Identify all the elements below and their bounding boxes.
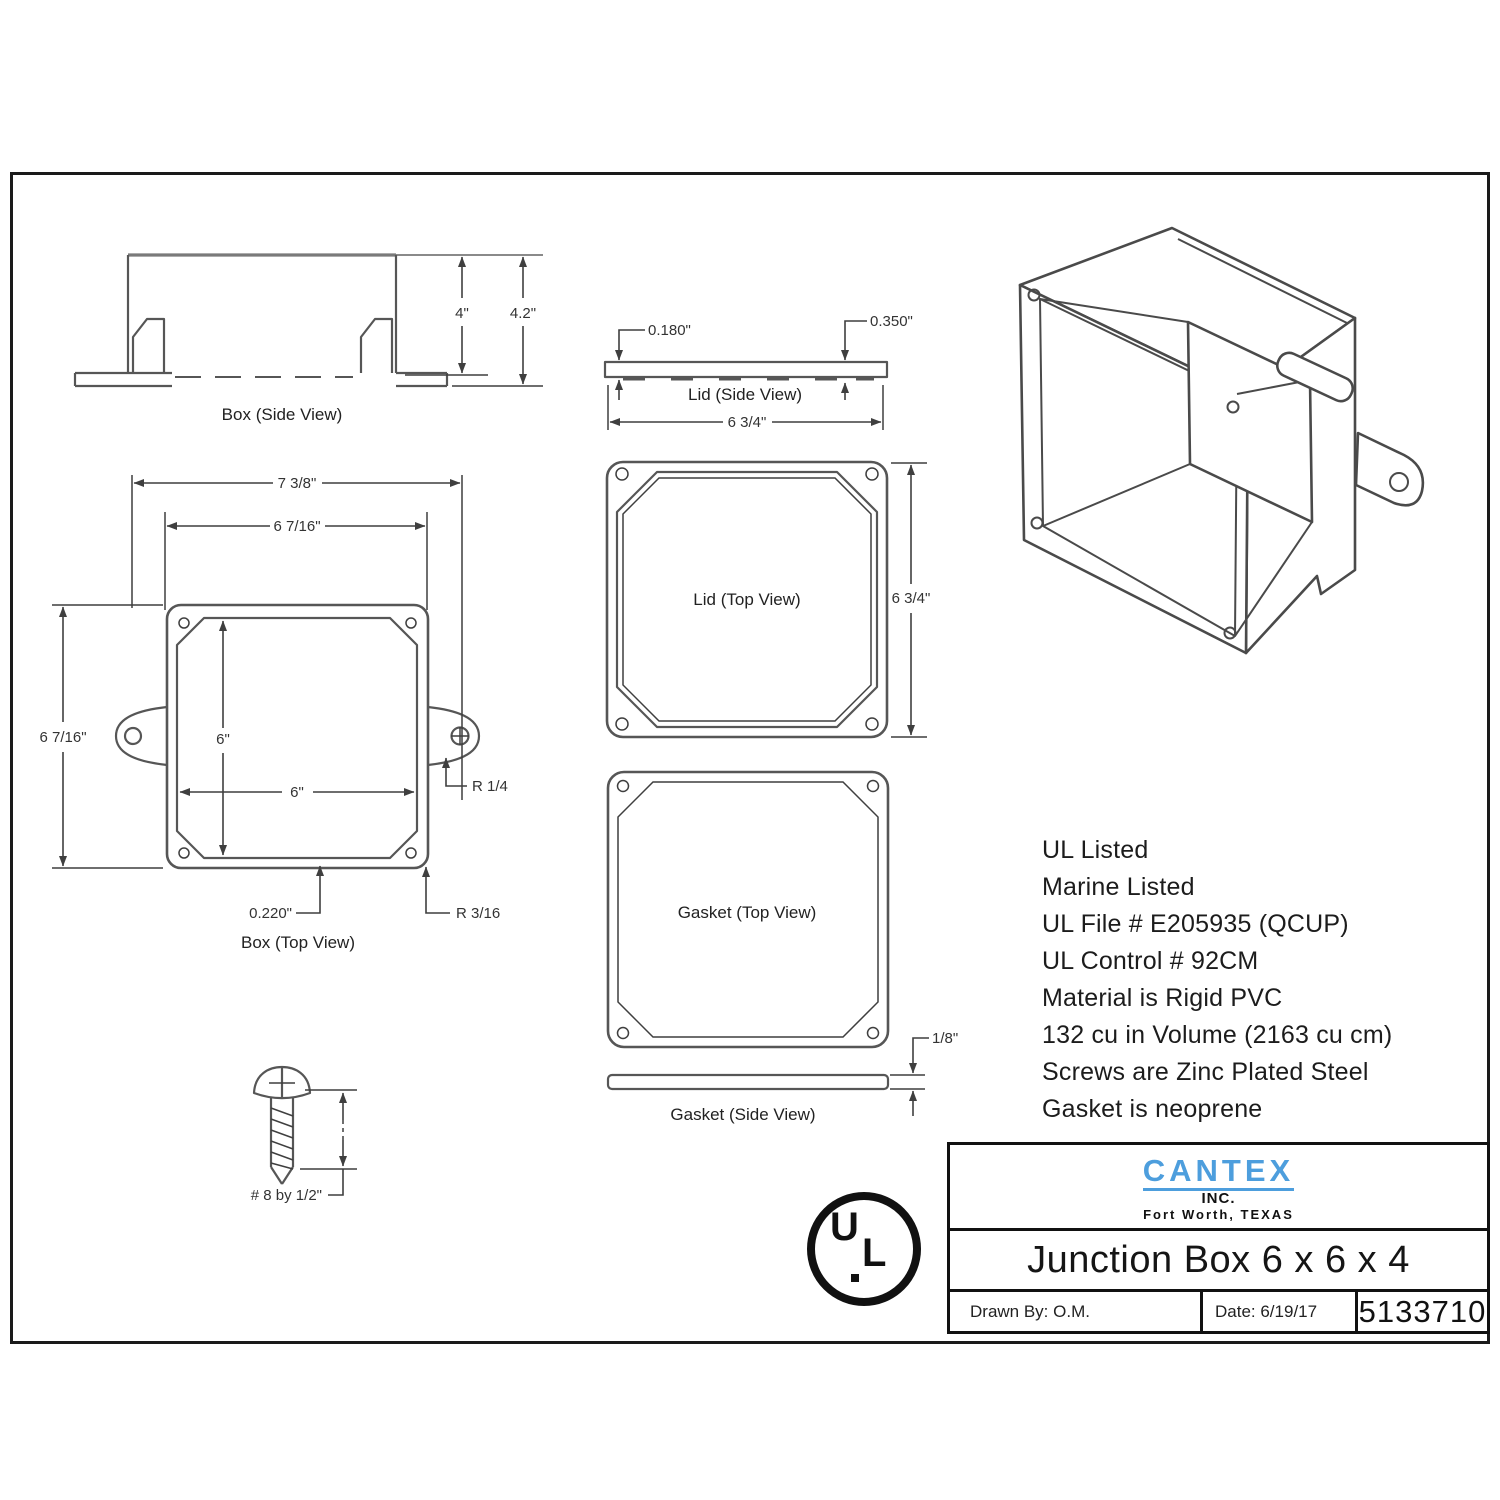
dim-flange-width: 6 7/16" — [273, 518, 320, 535]
spec-line: Marine Listed — [1042, 869, 1472, 906]
box-side-view-drawing: 4" 4.2" Box (Side View) — [60, 240, 560, 435]
isometric-box-drawing — [990, 195, 1480, 700]
title-block-logo-row: CANTEX INC. Fort Worth, TEXAS — [950, 1145, 1487, 1231]
dim-box-height: 4" — [455, 305, 469, 322]
screw-size-label: # 8 by 1/2" — [251, 1187, 322, 1204]
lid-top-view-caption: Lid (Top View) — [693, 590, 800, 609]
dim-flange-height: 6 7/16" — [39, 729, 86, 746]
product-title: Junction Box 6 x 6 x 4 — [1027, 1239, 1410, 1282]
gasket-side-view-caption: Gasket (Side View) — [670, 1105, 815, 1124]
ul-letter-u: U — [830, 1207, 859, 1247]
lid-side-view-drawing: 0.180" 0.350" 6 3/4" Lid (Side View) — [595, 300, 955, 440]
box-side-dimensions: 4" 4.2" — [405, 257, 543, 386]
dim-box-overall-height: 4.2" — [510, 305, 536, 322]
spec-list: UL Listed Marine Listed UL File # E20593… — [1042, 832, 1472, 1128]
dim-lid-width: 6 3/4" — [728, 414, 767, 431]
dim-inside-height: 6" — [216, 731, 230, 748]
screw-detail-drawing: # 8 by 1/2" — [195, 1050, 425, 1215]
title-block-info-row: Drawn By: O.M. Date: 6/19/17 5133710 — [950, 1292, 1487, 1331]
screw-dimensions: # 8 by 1/2" — [251, 1090, 357, 1204]
spec-line: Material is Rigid PVC — [1042, 980, 1472, 1017]
spec-line: UL Control # 92CM — [1042, 943, 1472, 980]
part-number-cell: 5133710 — [1358, 1292, 1487, 1331]
date-cell: Date: 6/19/17 — [1203, 1292, 1358, 1331]
spec-line: UL File # E205935 (QCUP) — [1042, 906, 1472, 943]
lid-top-view-drawing: 6 3/4" Lid (Top View) — [595, 450, 950, 760]
ul-logo-icon: U L — [807, 1192, 921, 1306]
box-side-outline — [75, 255, 543, 386]
drawn-by-cell: Drawn By: O.M. — [950, 1292, 1203, 1331]
box-top-outline — [116, 605, 479, 868]
isometric-box — [1020, 228, 1423, 653]
dim-ear-radius: R 1/4 — [472, 778, 508, 795]
spec-line: Gasket is neoprene — [1042, 1091, 1472, 1128]
dim-lid-thickness: 0.180" — [648, 322, 691, 339]
screw-outline — [254, 1067, 310, 1184]
title-block: CANTEX INC. Fort Worth, TEXAS Junction B… — [947, 1142, 1490, 1334]
drawing-sheet: 4" 4.2" Box (Side View) 7 3/ — [0, 0, 1500, 1500]
gasket-views-drawing: Gasket (Top View) 1/8" Gasket (Side View… — [595, 760, 995, 1135]
lid-top-dimensions: 6 3/4" — [891, 463, 930, 737]
dim-corner-radius: R 3/16 — [456, 905, 500, 922]
gasket-side-outline — [608, 1075, 888, 1089]
gasket-top-view-caption: Gasket (Top View) — [678, 903, 817, 922]
title-block-product-row: Junction Box 6 x 6 x 4 — [950, 1231, 1487, 1292]
dim-inside-width: 6" — [290, 784, 304, 801]
mounting-lug — [1356, 433, 1423, 505]
dim-gasket-thickness: 1/8" — [932, 1030, 958, 1047]
ul-dot — [851, 1274, 859, 1282]
ul-letter-l: L — [862, 1233, 886, 1273]
cantex-logo: CANTEX — [1143, 1155, 1294, 1191]
gasket-side-dimensions: 1/8" — [890, 1030, 958, 1116]
lid-side-outline — [605, 362, 887, 381]
spec-line: 132 cu in Volume (2163 cu cm) — [1042, 1017, 1472, 1054]
lid-side-view-caption: Lid (Side View) — [688, 385, 802, 404]
dim-lid-height: 6 3/4" — [892, 590, 931, 607]
box-side-view-caption: Box (Side View) — [222, 405, 343, 424]
dim-wall-thickness: 0.220" — [249, 905, 292, 922]
spec-line: UL Listed — [1042, 832, 1472, 869]
lid-side-dimensions: 0.180" 0.350" 6 3/4" — [608, 313, 913, 431]
dim-lid-total-thickness: 0.350" — [870, 313, 913, 330]
box-top-dimensions: 7 3/8" 6 7/16" 6 7/16" 6" 6" 0.220" R 3/… — [39, 475, 507, 922]
cantex-city-label: Fort Worth, TEXAS — [950, 1207, 1487, 1222]
dim-overall-width: 7 3/8" — [278, 475, 317, 492]
box-top-view-drawing: 7 3/8" 6 7/16" 6 7/16" 6" 6" 0.220" R 3/… — [30, 450, 560, 965]
box-top-view-caption: Box (Top View) — [241, 933, 355, 952]
spec-line: Screws are Zinc Plated Steel — [1042, 1054, 1472, 1091]
cantex-inc-label: INC. — [950, 1191, 1487, 1208]
